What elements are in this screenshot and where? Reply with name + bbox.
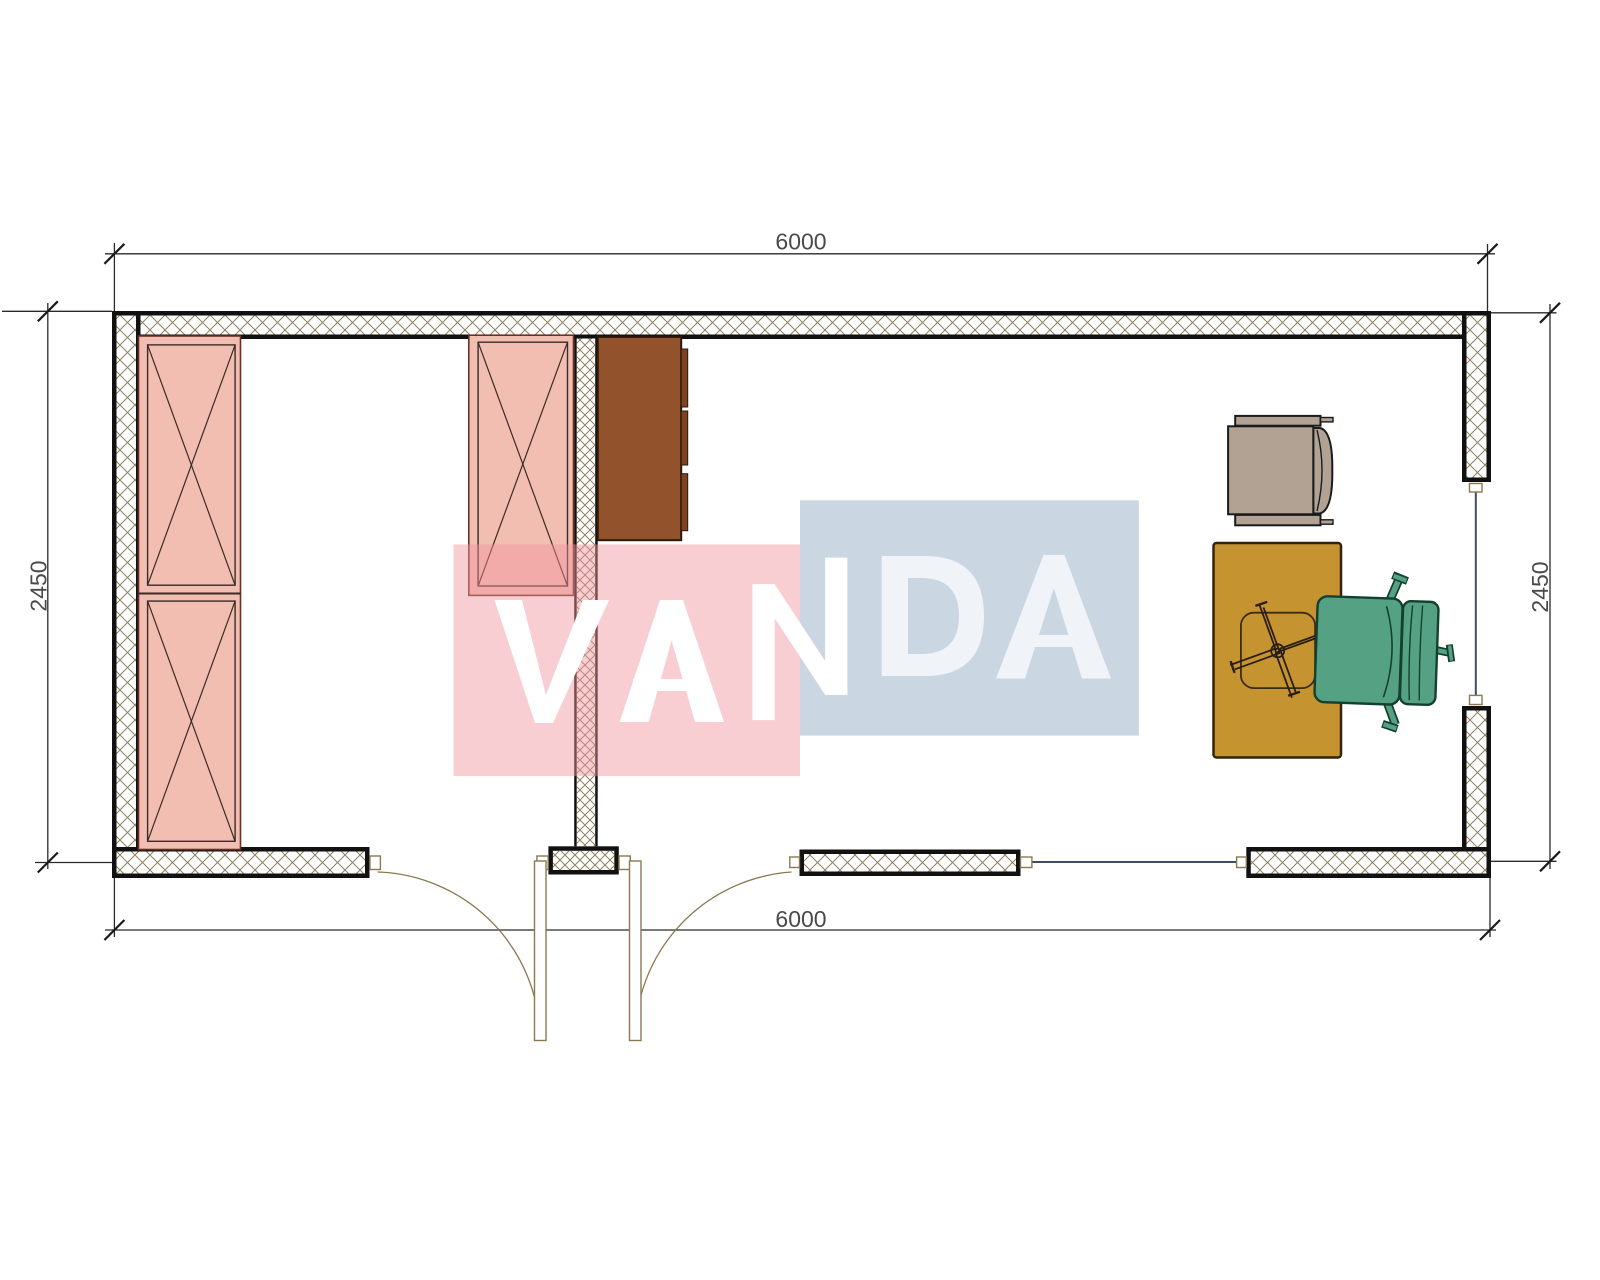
- svg-text:6000: 6000: [775, 906, 826, 932]
- svg-text:6000: 6000: [775, 229, 826, 255]
- svg-text:2450: 2450: [26, 560, 52, 611]
- svg-text:2450: 2450: [1527, 561, 1553, 612]
